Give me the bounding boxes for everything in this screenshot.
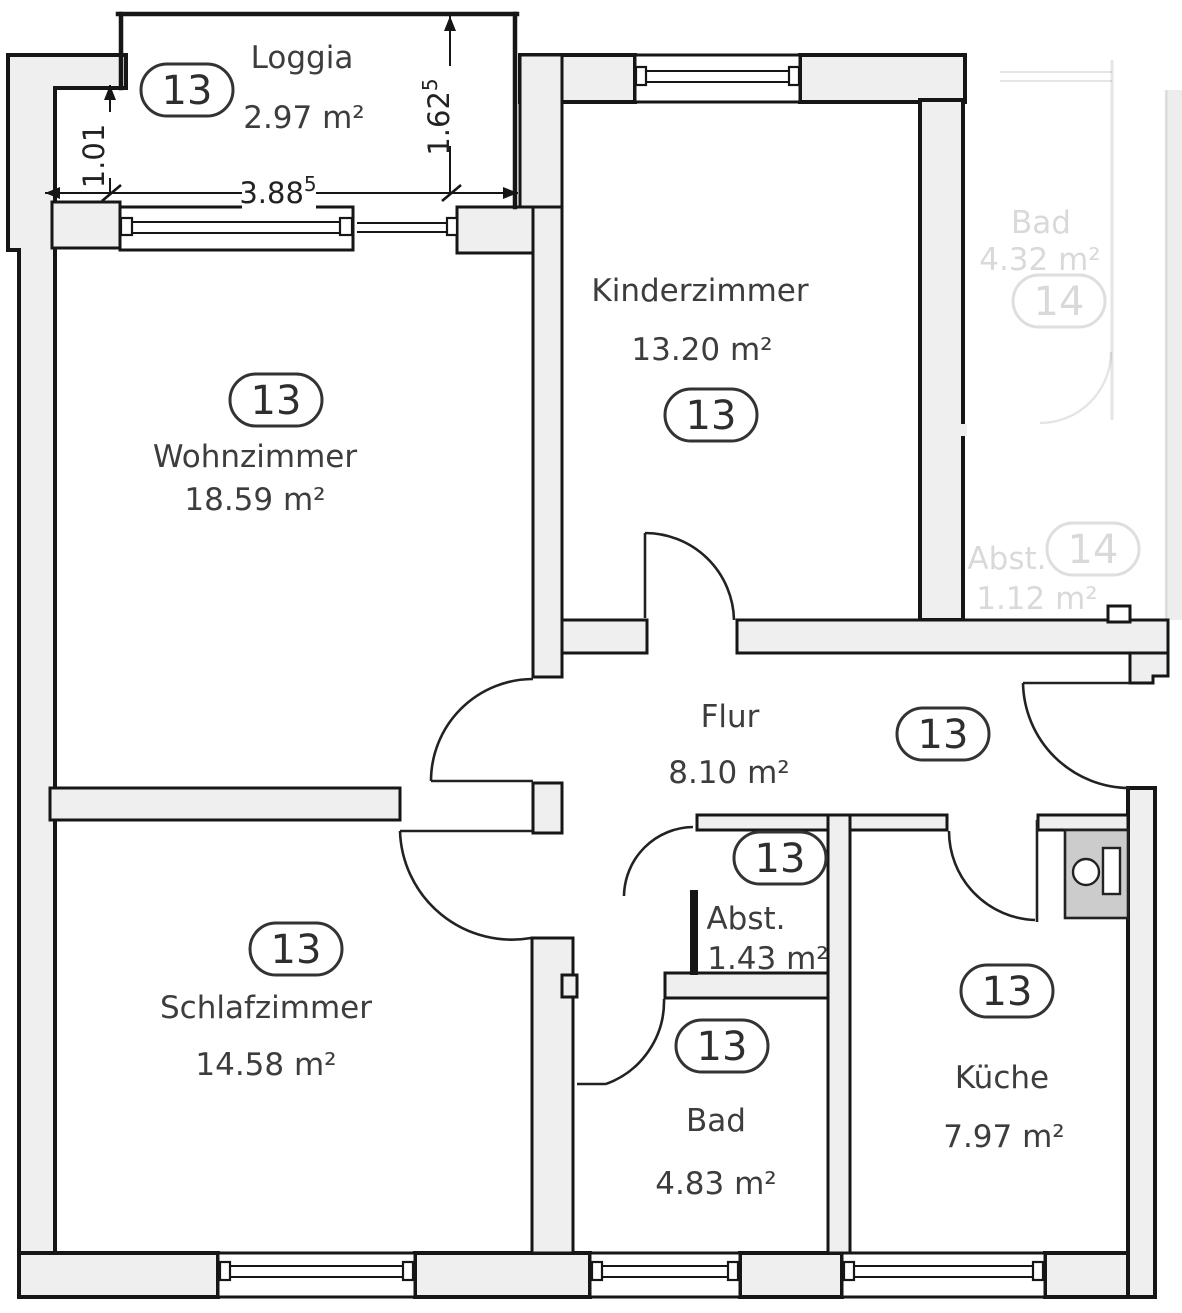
- wall-abst-top: [697, 815, 845, 830]
- window-wohnzimmer: [120, 207, 353, 250]
- wall-kinderzimmer-top: [800, 55, 965, 102]
- wall-wohnzimmer-right: [533, 207, 562, 677]
- window-cap: [592, 1262, 602, 1280]
- schlafzimmer-badge-number: 13: [271, 927, 322, 973]
- neighbor-bad-area: 4.32 m²: [979, 242, 1101, 278]
- wohnzimmer-badge-number: 13: [251, 378, 302, 424]
- abstellraum-badge-number: 13: [755, 836, 806, 882]
- window-cap: [121, 218, 132, 235]
- neighbor-bad-label: Bad: [1011, 205, 1071, 241]
- sink-unit: [1065, 830, 1128, 918]
- loggia-badge-number: 13: [162, 68, 213, 114]
- room-neighbor-abstellraum: Abst.1.12 m²14: [967, 523, 1139, 617]
- floor-plan-canvas: 3.8851.011.625 Loggia2.97 m²13Wohnzimmer…: [0, 0, 1182, 1313]
- wohnzimmer-area: 18.59 m²: [184, 482, 325, 518]
- room-bad: Bad4.83 m²13: [655, 1020, 777, 1202]
- schlafzimmer-door-arc: [400, 831, 531, 940]
- wall-loggia-left-piece: [52, 202, 120, 248]
- wall-kueche-left: [828, 815, 850, 1253]
- dim-loggia-right-depth-value: 1.62: [422, 91, 456, 156]
- kinderzimmer-door-arc: [645, 533, 734, 620]
- neighbor-abstellraum-label: Abst.: [967, 541, 1046, 577]
- flur-area: 8.10 m²: [668, 755, 790, 791]
- wall-pillar: [533, 783, 562, 833]
- wall-corridor-stub: [562, 975, 577, 997]
- room-schlafzimmer: Schlafzimmer14.58 m²13: [160, 923, 372, 1083]
- schlafzimmer-label: Schlafzimmer: [160, 990, 372, 1026]
- neighbor-abstellraum-badge-number: 14: [1068, 527, 1119, 573]
- window-cap: [789, 67, 799, 85]
- dim-arrow-up: [444, 16, 456, 31]
- kueche-badge-number: 13: [982, 969, 1033, 1015]
- room-wohnzimmer: Wohnzimmer18.59 m²13: [153, 374, 357, 518]
- room-kinderzimmer: Kinderzimmer13.20 m²13: [591, 273, 808, 441]
- neighbor-bad-badge-number: 14: [1034, 279, 1085, 325]
- window-kueche: [842, 1253, 1045, 1297]
- dim-loggia-width-value: 3.88: [239, 176, 304, 210]
- room-loggia: Loggia2.97 m²13: [141, 40, 365, 136]
- window-frame: [590, 1253, 740, 1297]
- kinderzimmer-badge-number: 13: [686, 393, 737, 439]
- room-flur: Flur8.10 m²13: [668, 699, 989, 791]
- kinderzimmer-area: 13.20 m²: [631, 332, 772, 368]
- abstellraum-label: Abst.: [706, 901, 785, 937]
- neighbor-wall: [1166, 90, 1182, 620]
- loggia-label: Loggia: [251, 40, 354, 76]
- abst-door-arc: [624, 827, 693, 896]
- room-kueche: Küche7.97 m²13: [943, 965, 1065, 1155]
- flur-badge-number: 13: [918, 712, 969, 758]
- window-kinderzimmer: [635, 55, 800, 102]
- bad-door-arc: [606, 999, 664, 1084]
- window-frame: [842, 1253, 1045, 1297]
- window-cap: [220, 1262, 230, 1280]
- wall-notch: [1108, 606, 1130, 622]
- bad-badge-number: 13: [697, 1024, 748, 1070]
- wall-abst-left: [690, 890, 698, 975]
- bad-area: 4.83 m²: [655, 1166, 777, 1202]
- neighbor-abstellraum-area: 1.12 m²: [976, 581, 1098, 617]
- wall-right-outer: [1128, 788, 1155, 1297]
- window-frame: [218, 1253, 415, 1297]
- wall-bottom: [19, 1253, 218, 1297]
- neighbor-door-arc: [1040, 352, 1111, 423]
- entrance-door-arc: [1023, 683, 1130, 788]
- bad-label: Bad: [686, 1103, 746, 1139]
- wall-bottom: [415, 1253, 590, 1297]
- sink-basin-icon: [1073, 859, 1099, 885]
- wall-kueche-top: [1038, 815, 1128, 830]
- window-cap: [728, 1262, 738, 1280]
- wohnzimmer-door-arc: [431, 679, 533, 781]
- window-cap: [447, 218, 457, 235]
- window-cap: [1033, 1262, 1043, 1280]
- wohnzimmer-label: Wohnzimmer: [153, 439, 357, 475]
- room-abstellraum: Abst.1.43 m²13: [706, 832, 828, 977]
- wall-upper-band: [520, 55, 562, 207]
- dim-loggia-left-depth: 1.01: [77, 124, 111, 189]
- room-neighbor-bad: Bad4.32 m²14: [979, 205, 1105, 327]
- window-cap: [340, 218, 352, 235]
- kueche-door-arc: [949, 831, 1035, 920]
- wall-flur-top: [737, 620, 1168, 653]
- dimension-labels: 3.8851.011.625: [77, 66, 467, 214]
- flur-label: Flur: [701, 699, 760, 735]
- wall-joint-gap: [955, 424, 967, 436]
- kueche-area: 7.97 m²: [943, 1119, 1065, 1155]
- window-cap: [403, 1262, 413, 1280]
- wall-bottom: [740, 1253, 842, 1297]
- abstellraum-area: 1.43 m²: [707, 941, 829, 977]
- dim-loggia-right-depth-superscript: 5: [418, 78, 442, 91]
- wall-entrance-step: [1130, 653, 1168, 683]
- schlafzimmer-area: 14.58 m²: [195, 1047, 336, 1083]
- kueche-label: Küche: [955, 1060, 1049, 1096]
- window-bad: [590, 1253, 740, 1297]
- windows: [120, 55, 1045, 1297]
- sink-drainer-icon: [1103, 848, 1120, 894]
- window-schlafzimmer: [218, 1253, 415, 1297]
- wall-wohnzimmer-top-block: [457, 207, 533, 253]
- dim-loggia-width-superscript: 5: [304, 172, 317, 196]
- floor-plan: 3.8851.011.625 Loggia2.97 m²13Wohnzimmer…: [0, 0, 1182, 1313]
- wall-flur-top: [562, 620, 647, 653]
- kinderzimmer-label: Kinderzimmer: [591, 273, 808, 309]
- wall-kueche-top: [850, 815, 947, 830]
- wall-schlafzimmer-top: [50, 788, 400, 820]
- dim-loggia-left-depth-value: 1.01: [77, 124, 111, 189]
- window-cap: [636, 67, 646, 85]
- wall-kinderzimmer-right: [920, 100, 963, 620]
- window-cap: [844, 1262, 854, 1280]
- loggia-area: 2.97 m²: [243, 100, 365, 136]
